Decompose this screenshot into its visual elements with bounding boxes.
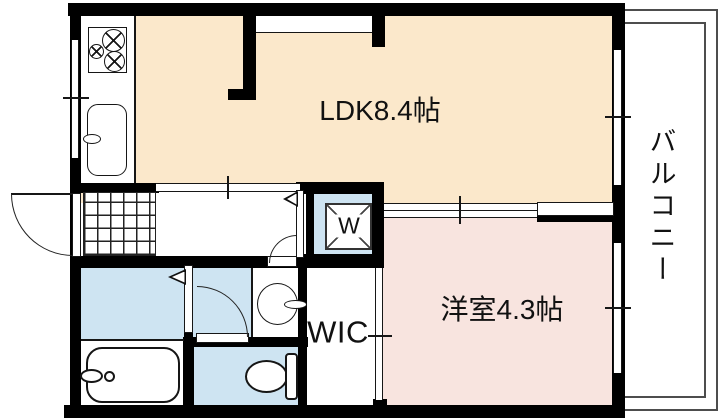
ldk-western-partition-tick (459, 196, 461, 224)
kitchen-window-tick (63, 97, 89, 99)
wall-niche-right-stub (372, 16, 385, 47)
wic-partition (375, 268, 383, 400)
wall-wic-left (298, 256, 307, 407)
wall-niche-left (243, 16, 256, 91)
ldk-label: LDK8.4帖 (319, 97, 440, 125)
washbasin-faucet-icon (284, 300, 307, 309)
balcony-label: バルコニー (647, 127, 674, 287)
entrance-tile (83, 192, 156, 256)
toilet-bowl-icon (245, 360, 288, 393)
wall-bath-toilet (183, 341, 194, 407)
wall-niche-foot (228, 89, 256, 100)
sliding-door-panel (537, 202, 614, 216)
wic-partition-tick (368, 335, 392, 337)
bath-washroom-line (81, 339, 184, 341)
wall-slide-track (537, 215, 625, 222)
western-window-tick (605, 307, 631, 309)
toilet-tank-icon (285, 353, 298, 400)
wic-label: WIC (307, 317, 369, 348)
bathtub-knob-icon (104, 371, 115, 382)
hallway-partition-tick (227, 176, 229, 199)
stove-burner-icon (104, 51, 125, 72)
kitchen-ldk-line (134, 16, 136, 183)
stove-burner-icon (89, 44, 104, 59)
sink-faucet-icon (83, 134, 101, 144)
stove-burner-icon (102, 29, 125, 52)
ldk-window-tick (605, 116, 631, 118)
washer-label: W (335, 215, 363, 238)
entrance-door-arc (11, 194, 73, 256)
alcove-divider-line (251, 268, 253, 337)
wall-top (68, 3, 625, 16)
kitchen-window (71, 40, 80, 158)
niche-opening (256, 16, 372, 33)
floor-plan: LDK8.4帖 洋室4.3帖 WIC W バルコニー (0, 0, 722, 420)
wall-partition-stub (373, 399, 387, 410)
western-room-label: 洋室4.3帖 (441, 296, 564, 324)
washroom-floor (81, 268, 184, 339)
bathtub-faucet-icon (80, 369, 103, 383)
wall-bottom (64, 405, 625, 418)
